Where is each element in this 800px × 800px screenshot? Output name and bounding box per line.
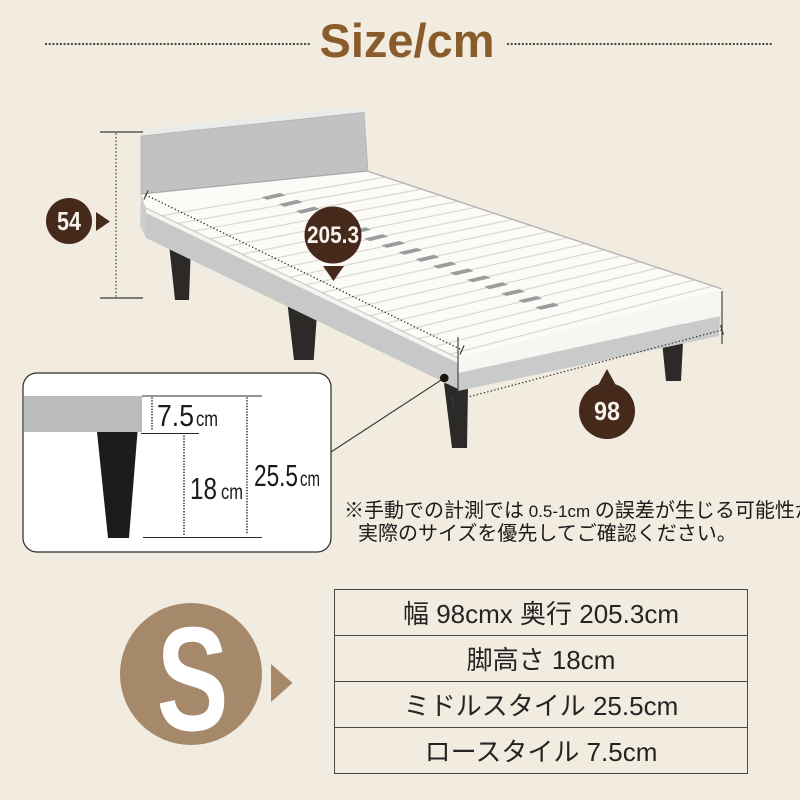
svg-text:cm: cm — [300, 468, 320, 491]
svg-text:S: S — [157, 597, 229, 762]
svg-text:205.3: 205.3 — [307, 222, 359, 249]
svg-text:54: 54 — [57, 206, 81, 236]
svg-text:18: 18 — [190, 471, 217, 506]
svg-text:cm: cm — [196, 408, 218, 431]
svg-text:98: 98 — [594, 396, 620, 426]
svg-text:cm: cm — [221, 481, 243, 504]
svg-text:25.5: 25.5 — [254, 458, 298, 493]
svg-text:7.5: 7.5 — [157, 398, 194, 433]
